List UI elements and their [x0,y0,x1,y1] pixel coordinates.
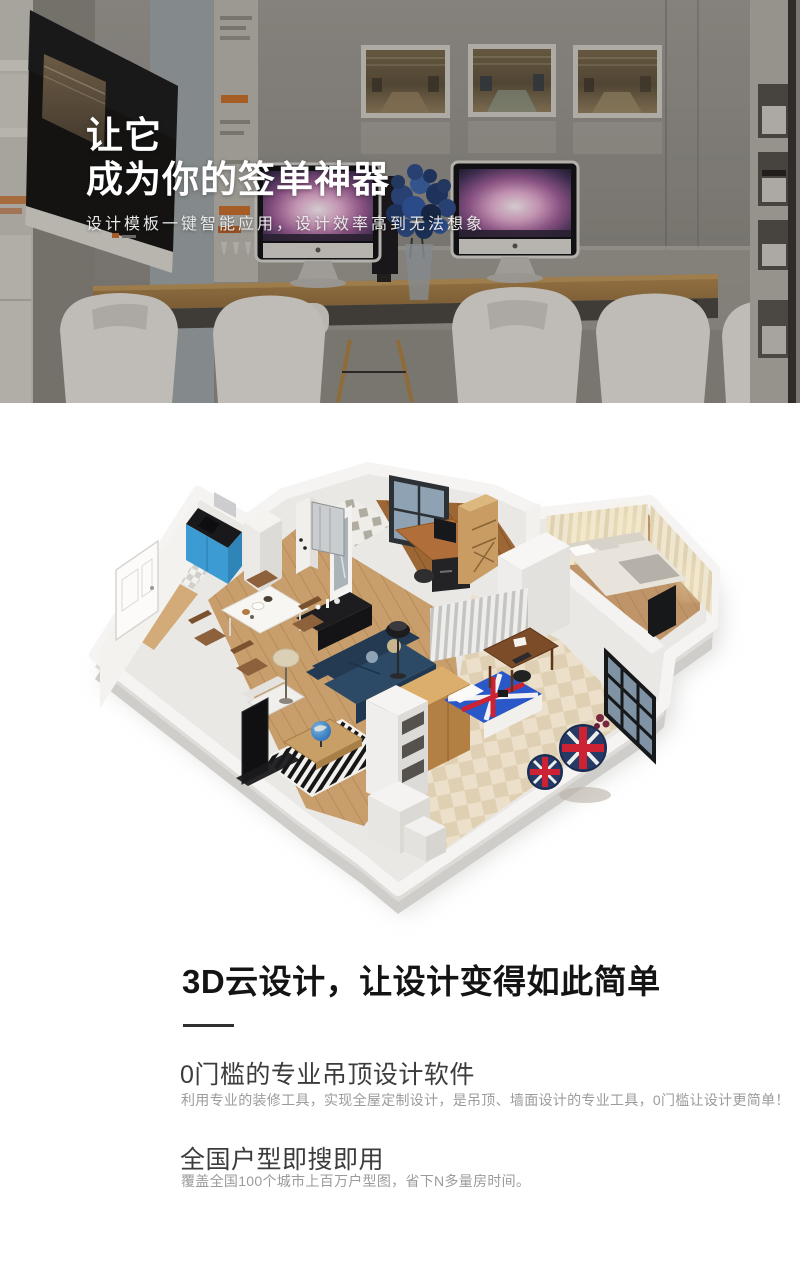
feature-1-title: 0门槛的专业吊顶设计软件 [180,1055,475,1091]
hero-title-line1: 让它 [86,114,485,158]
floor-plan-illustration [0,450,800,950]
section-divider [183,1024,234,1027]
feature-2-description: 覆盖全国100个城市上百万户型图，省下N多量房时间。 [181,1171,530,1191]
section-heading: 3D云设计，让设计变得如此简单 [182,955,661,1003]
hero-subtitle: 设计模板一键智能应用，设计效率高到无法想象 [86,210,485,234]
hero-title-line2: 成为你的签单神器 [86,158,485,202]
feature-1-description: 利用专业的装修工具，实现全屋定制设计，是吊顶、墙面设计的专业工具，0门槛让设计更… [181,1090,790,1110]
hero-text-block: 让它 成为你的签单神器 设计模板一键智能应用，设计效率高到无法想象 [86,114,485,234]
floor-lamp-beige [273,649,299,667]
hero-section: 让它 成为你的签单神器 设计模板一键智能应用，设计效率高到无法想象 [0,0,800,403]
landing-page: 让它 成为你的签单神器 设计模板一键智能应用，设计效率高到无法想象 [0,0,800,1271]
